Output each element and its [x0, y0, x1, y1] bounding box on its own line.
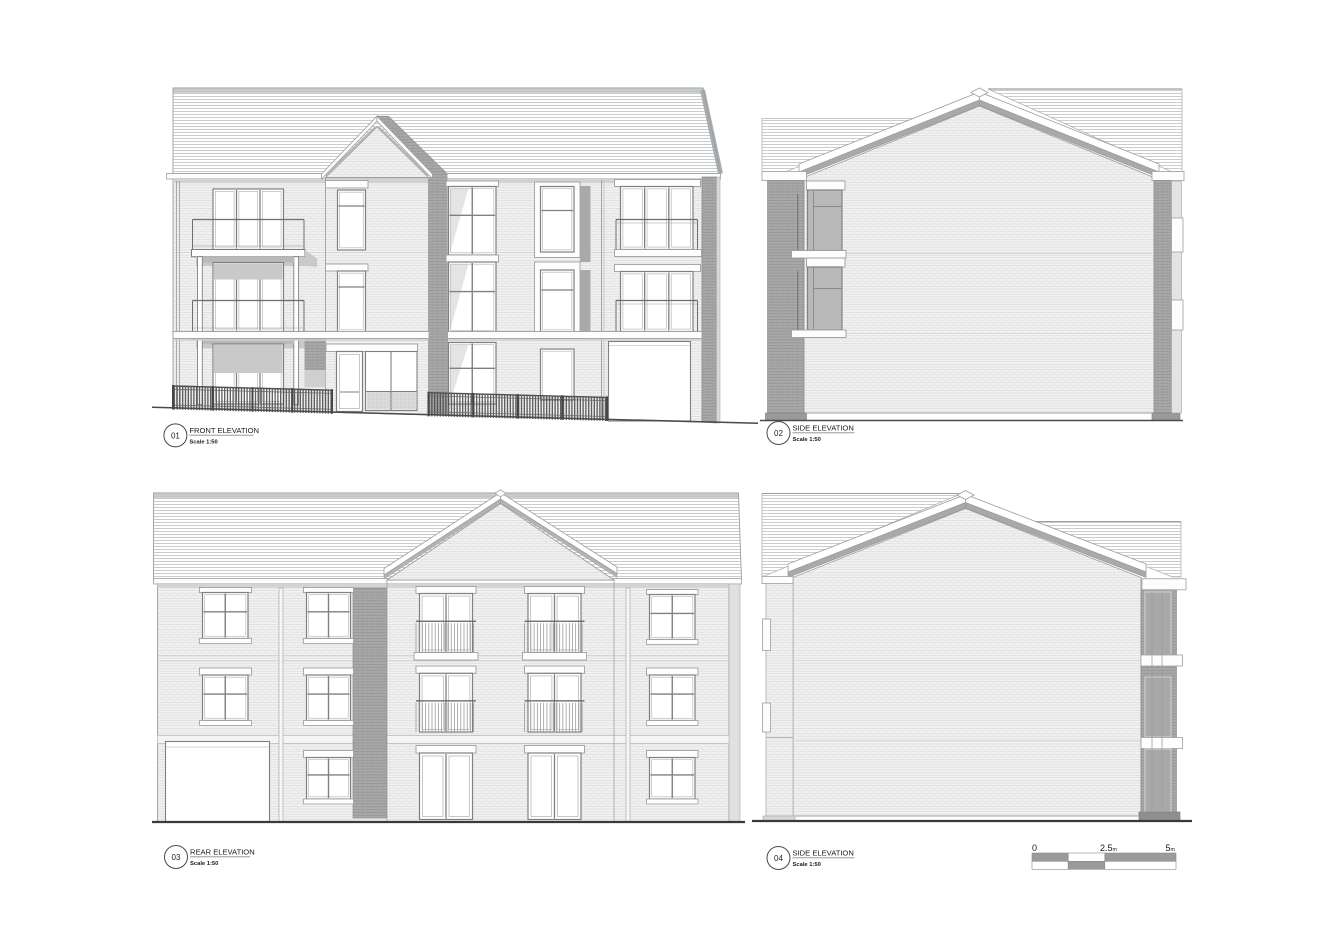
svg-text:Scale 1:50: Scale 1:50	[189, 439, 217, 445]
svg-text:Scale 1:50: Scale 1:50	[190, 861, 218, 867]
svg-text:Scale 1:50: Scale 1:50	[793, 437, 821, 443]
svg-text:03: 03	[172, 853, 181, 862]
svg-text:SIDE ELEVATION: SIDE ELEVATION	[793, 849, 854, 858]
svg-text:REAR ELEVATION: REAR ELEVATION	[190, 848, 255, 857]
svg-text:02: 02	[774, 429, 783, 438]
svg-text:FRONT ELEVATION: FRONT ELEVATION	[189, 426, 259, 435]
svg-text:04: 04	[774, 854, 783, 863]
svg-text:0: 0	[1032, 843, 1037, 853]
svg-text:SIDE ELEVATION: SIDE ELEVATION	[793, 424, 854, 433]
svg-text:01: 01	[171, 431, 180, 440]
svg-text:Scale 1:50: Scale 1:50	[793, 862, 821, 868]
